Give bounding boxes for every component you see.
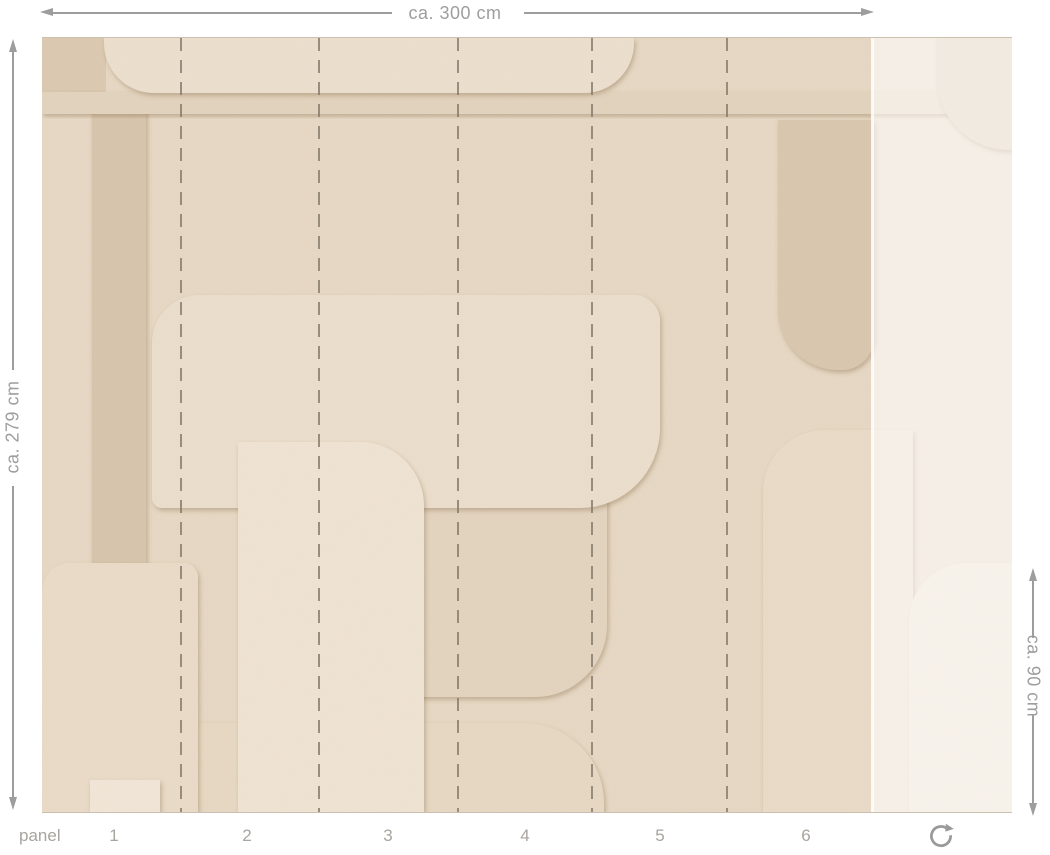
panel-number-4: 4 [520,826,529,846]
panel-number-1: 1 [109,826,118,846]
arrow-right-icon [861,8,874,16]
panel-number-2: 2 [242,826,251,846]
wallpaper-panel-diagram: ca. 300 cm ca. 279 cm ca. 90 cm [0,0,1050,855]
height-dimension-line [12,486,14,797]
arrow-left-icon [40,8,53,16]
panel-number-3: 3 [383,826,392,846]
panel-number-row: panel 1 2 3 4 5 6 [0,820,1050,855]
width-dimension-line [53,12,392,14]
rotate-panel-button[interactable] [925,819,957,851]
panel-number-5: 5 [655,826,664,846]
unused-panel-overlay [873,38,1012,812]
wallpaper-preview [42,38,1012,812]
arrow-down-icon [1029,803,1037,816]
arrow-down-icon [9,797,17,810]
height-dimension-line [12,52,14,370]
rotate-clockwise-icon [925,819,957,851]
arrow-up-icon [1029,568,1037,581]
panel-row-label: panel [19,826,61,846]
arrow-up-icon [9,39,17,52]
paper-grain-texture [42,38,1012,812]
partial-height-dimension-label: ca. 90 cm [1023,635,1044,718]
partial-height-dimension-line [1032,581,1034,638]
width-dimension-line [524,12,861,14]
height-dimension-label: ca. 279 cm [3,380,24,473]
partial-height-dimension-line [1032,714,1034,803]
width-dimension-label: ca. 300 cm [393,3,517,24]
panel-number-6: 6 [801,826,810,846]
